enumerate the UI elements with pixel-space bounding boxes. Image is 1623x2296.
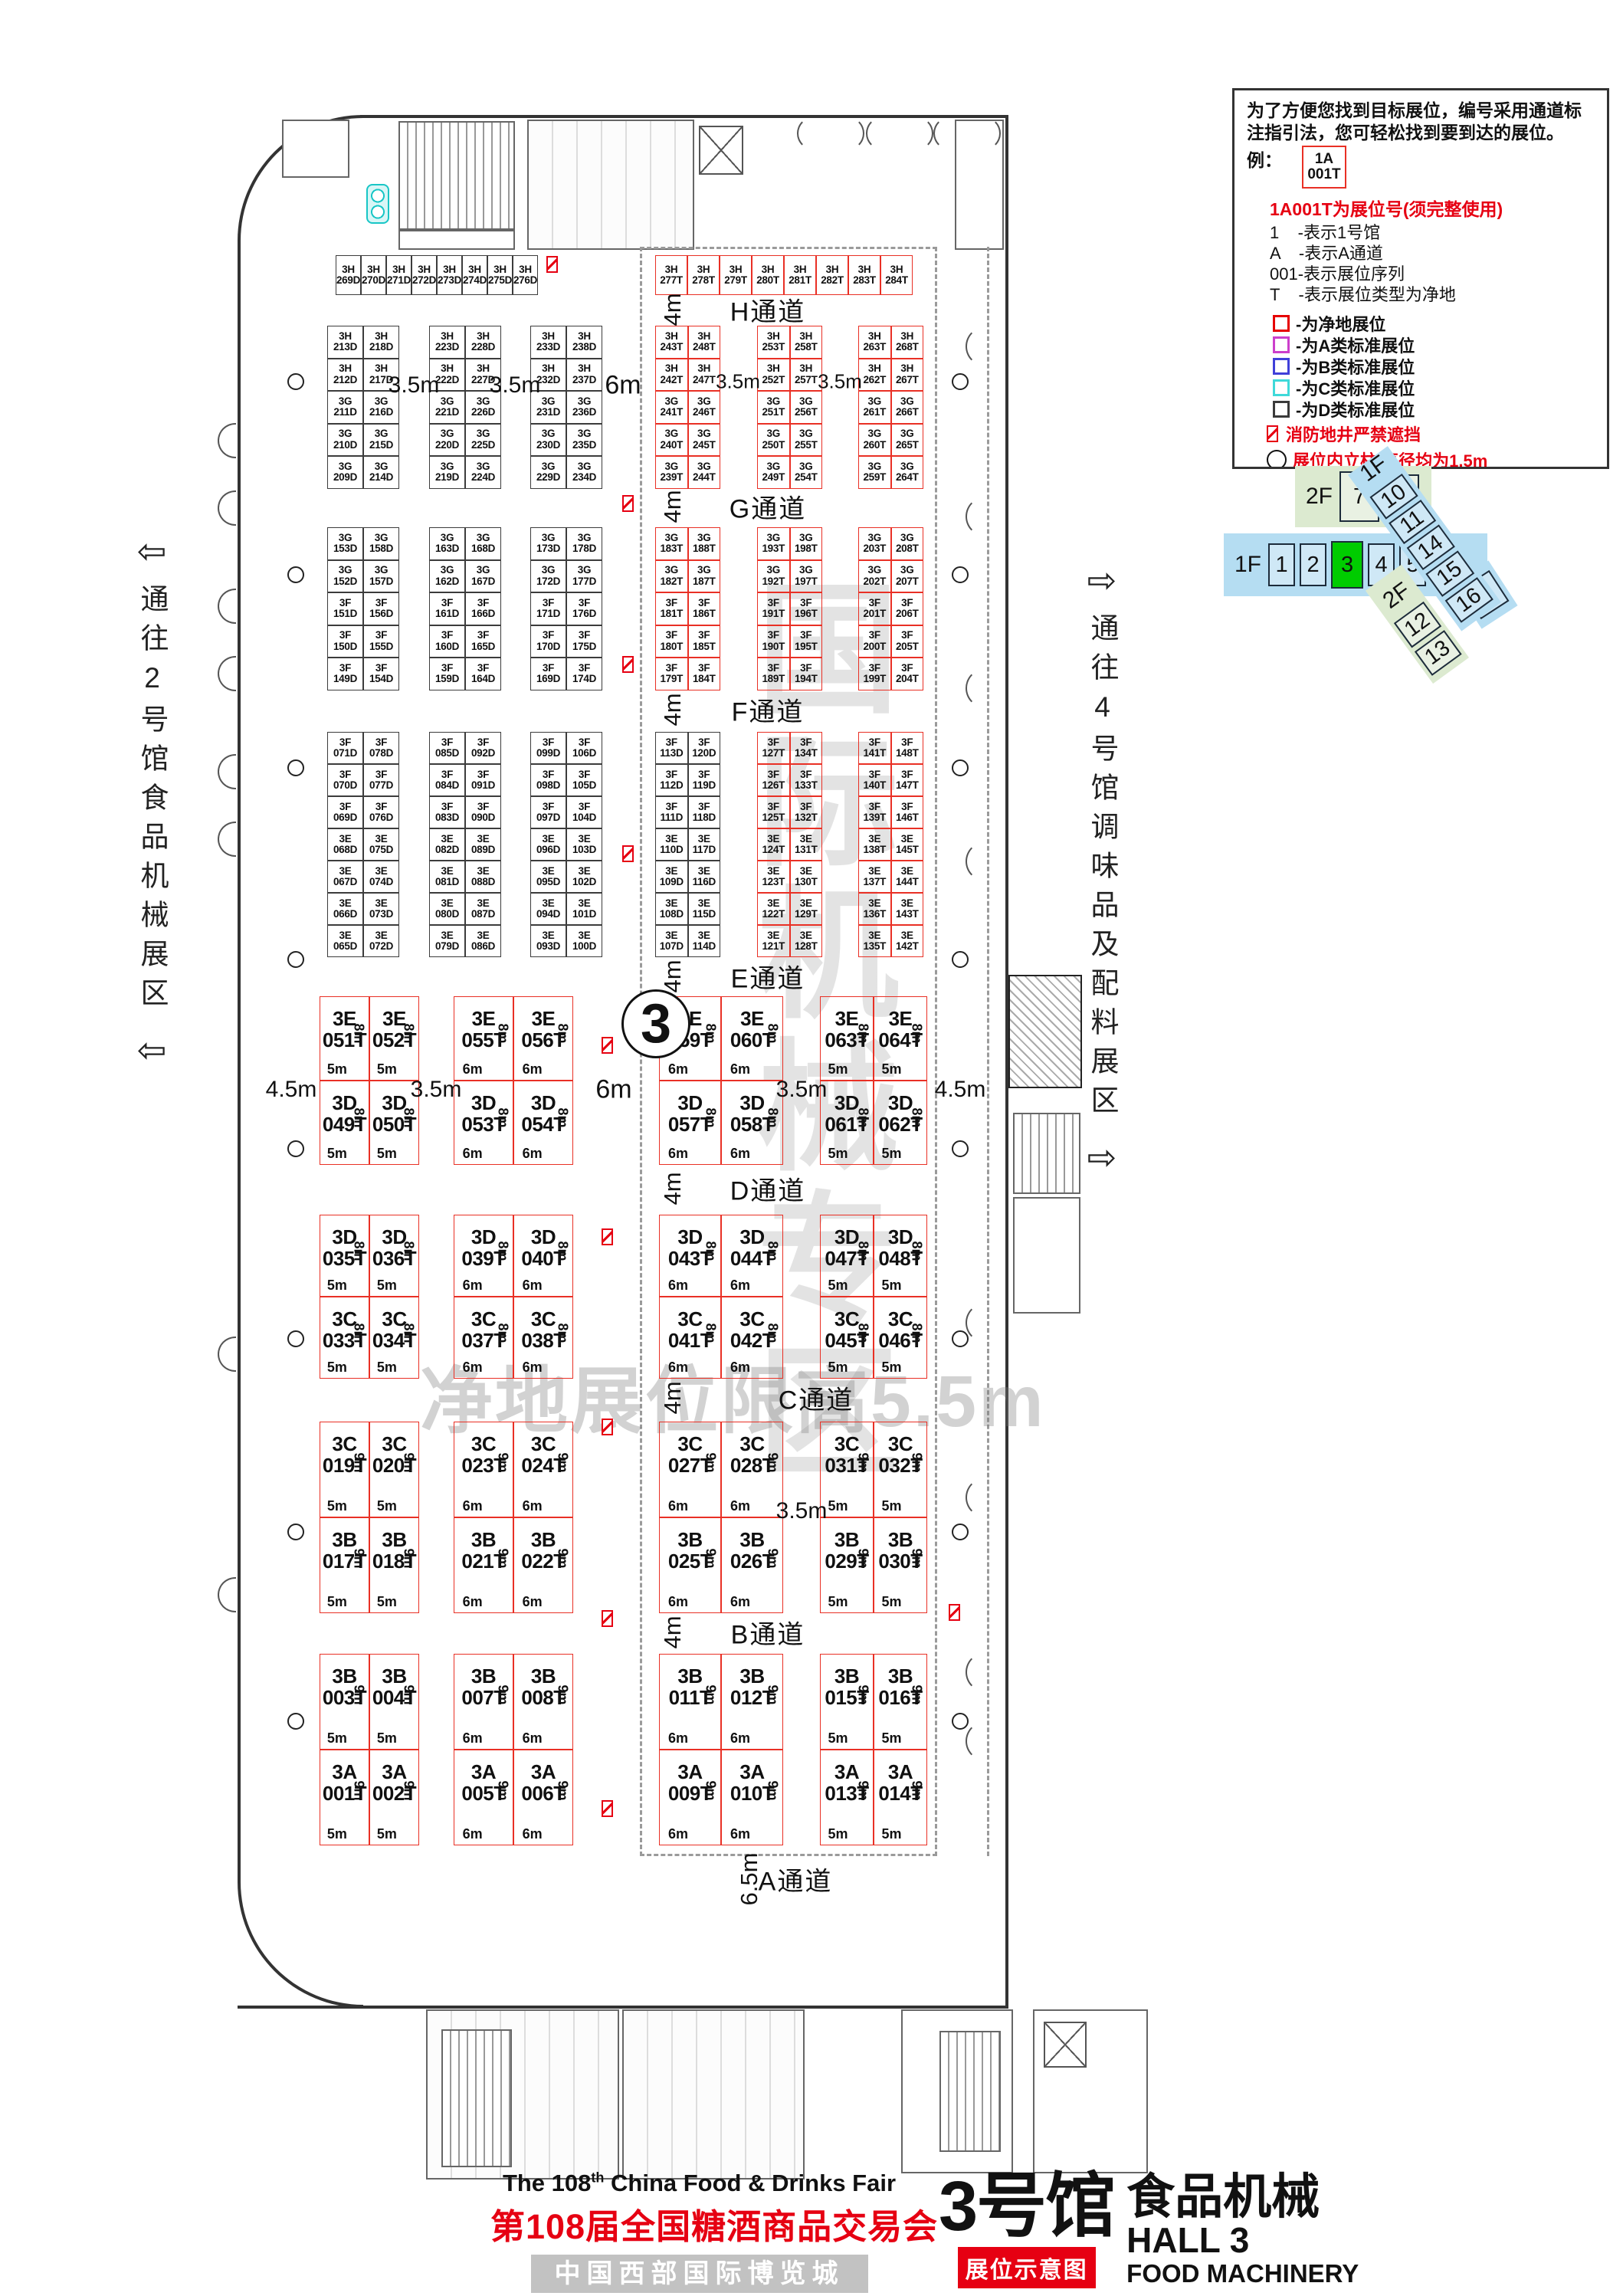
- aisle-name-label: H通道: [730, 291, 806, 329]
- dimension-label: 3.5m: [776, 1498, 828, 1524]
- booth-cell: 3E066D: [327, 893, 363, 925]
- legend-example-label: 例：: [1247, 146, 1282, 172]
- door-swing-arc: [933, 116, 967, 150]
- booth-cell: 3G197T: [790, 560, 823, 593]
- hall-title-en: HALL 3: [1126, 2222, 1359, 2258]
- door-swing-arc: [967, 116, 1001, 150]
- booth-cell: 3E107D: [655, 925, 688, 957]
- booth-cell: 3G214D: [363, 456, 399, 489]
- booth-cell: 3F190T: [757, 625, 790, 658]
- booth-cell: 3D040T6m8m: [513, 1215, 573, 1297]
- service-room: [282, 120, 349, 178]
- door-bump: [218, 1337, 236, 1372]
- booth-cell: 3F069D: [327, 796, 363, 828]
- minimap-floor-label: 2F: [1379, 577, 1415, 614]
- booth-cell: 3F084D: [429, 764, 465, 796]
- column-circle: [952, 759, 969, 776]
- booth-cell: 3G246T: [688, 391, 721, 424]
- column-circle: [952, 951, 969, 968]
- legend-type-row: -为A类标准展位: [1267, 334, 1595, 356]
- dimension-label: 4.5m: [935, 1077, 986, 1103]
- booth-type-label: -为D类标准展位: [1296, 397, 1415, 421]
- booth-cell: 3D058T6m8m: [721, 1081, 783, 1165]
- minimap-hall-2: 2: [1300, 543, 1326, 586]
- booth-cell: 3C046T5m8m: [874, 1297, 927, 1379]
- booth-cell: 3D043T6m8m: [659, 1215, 721, 1297]
- aisle-width-label: 4m: [659, 959, 687, 992]
- column-circle: [287, 373, 304, 390]
- booth-cell: 3E079D: [429, 925, 465, 957]
- hall-number-marker: 3: [621, 989, 690, 1058]
- door-bump: [218, 423, 236, 458]
- booth-type-swatch: [1273, 401, 1290, 418]
- booth-cell: 3E068D: [327, 828, 363, 861]
- booth-cell: 3H262T: [858, 359, 891, 392]
- booth-cell: 3D048T5m8m: [874, 1215, 927, 1297]
- booth-cell: 3H269D: [336, 255, 361, 295]
- booth-cell: 3E117D: [688, 828, 721, 861]
- booth-cell: 3H281T: [784, 255, 816, 295]
- booth-cell: 3D057T6m8m: [659, 1081, 721, 1165]
- fair-title-en: The 108th China Food & Drinks Fair: [490, 2170, 908, 2197]
- booth-cell: 3C019T5m9m: [320, 1422, 369, 1517]
- right-arrow-icon: ⇨: [1087, 1140, 1117, 1175]
- aisle-width-label: 4m: [659, 1615, 687, 1648]
- booth-cell: 3G183T: [655, 527, 688, 560]
- legend-code-title: 1A001T为展位号(须完整使用): [1270, 195, 1595, 221]
- left-arrow-icon: ⇦: [137, 533, 167, 569]
- legend-code-line: T -表示展位类型为净地: [1270, 284, 1595, 305]
- dimension-label: 3.5m: [411, 1077, 462, 1103]
- booth-cell: 3E067D: [327, 861, 363, 893]
- booth-cell: 3H278T: [687, 255, 720, 295]
- dimension-label: 3.5m: [818, 370, 862, 394]
- booth-cell: 3B026T6m9m: [721, 1517, 783, 1613]
- booth-cell: 3H237D: [566, 359, 602, 392]
- aisle-name-label: D通道: [730, 1170, 806, 1208]
- booth-cell: 3H238D: [566, 326, 602, 359]
- booth-cell: 3G158D: [363, 527, 399, 560]
- booth-cell: 3G192T: [757, 560, 790, 593]
- minimap-hall-3: 3: [1331, 541, 1363, 589]
- wall: [238, 247, 241, 1873]
- hall-category-cn: 食品机械: [1126, 2173, 1359, 2222]
- booth-cell: 3B008T6m9m: [513, 1654, 573, 1750]
- column-circle: [952, 566, 969, 583]
- booth-cell: 3F077D: [363, 764, 399, 796]
- booth-cell: 3F092D: [465, 732, 501, 764]
- booth-cell: 3F159D: [429, 658, 465, 690]
- aisle-name-label: G通道: [730, 488, 806, 526]
- booth-cell: 3C032T5m9m: [874, 1422, 927, 1517]
- fire-hydrant-icon: [602, 1800, 613, 1817]
- booth-cell: 3E100D: [566, 925, 602, 957]
- booth-cell: 3G203T: [858, 527, 891, 560]
- booth-type-swatch: [1273, 358, 1290, 375]
- booth-cell: 3G163D: [429, 527, 465, 560]
- booth-cell: 3B016T5m9m: [874, 1654, 927, 1750]
- booth-cell: 3G264T: [891, 456, 924, 489]
- booth-cell: 3F118D: [688, 796, 721, 828]
- booth-cell: 3F196T: [790, 592, 823, 625]
- booth-cell: 3A002T5m9m: [369, 1750, 419, 1845]
- booth-cell: 3G251T: [757, 391, 790, 424]
- door-swing-arc: [966, 841, 1005, 881]
- booth-cell: 3G230D: [530, 424, 566, 457]
- fixture-icon: [366, 184, 389, 224]
- booth-cell: 3F174D: [566, 658, 602, 690]
- booth-cell: 3C027T6m9m: [659, 1422, 721, 1517]
- booth-cell: 3E103D: [566, 828, 602, 861]
- booth-cell: 3F185T: [688, 625, 721, 658]
- door-swing-arc: [966, 1478, 1005, 1517]
- booth-cell: 3F176D: [566, 592, 602, 625]
- booth-cell: 3B015T5m9m: [820, 1654, 874, 1750]
- legend-type-row: -为B类标准展位: [1267, 356, 1595, 377]
- dimension-label: 6m: [605, 371, 641, 401]
- booth-cell: 3A014T5m9m: [874, 1750, 927, 1845]
- booth-cell: 3C033T5m8m: [320, 1297, 369, 1379]
- booth-cell: 3F149D: [327, 658, 363, 690]
- booth-cell: 3F180T: [655, 625, 688, 658]
- legend-type-row: -为净地展位: [1267, 313, 1595, 334]
- booth-cell: 3D061T5m8m: [820, 1081, 874, 1165]
- booth-cell: 3F164D: [465, 658, 501, 690]
- legend-fire-note: 消防地井严禁遮挡: [1267, 421, 1595, 446]
- fire-hydrant-icon: [602, 1228, 613, 1245]
- booth-cell: 3E089D: [465, 828, 501, 861]
- booth-cell: 3G152D: [327, 560, 363, 593]
- aisle-name-label: A通道: [759, 1861, 833, 1898]
- booth-cell: 3G182T: [655, 560, 688, 593]
- booth-cell: 3F181T: [655, 592, 688, 625]
- door-swing-arc: [797, 116, 831, 150]
- venue-minimap: 2F781F123456916151411101F13122F: [1215, 460, 1598, 782]
- booth-cell: 3G249T: [757, 456, 790, 489]
- booth-cell: 3E138T: [858, 828, 891, 861]
- booth-cell: 3G260T: [858, 424, 891, 457]
- aisle-name-label: C通道: [779, 1379, 854, 1417]
- booth-cell: 3E082D: [429, 828, 465, 861]
- legend-intro: 为了方便您找到目标展位，编号采用通道标注指引法，您可轻松找到要到达的展位。: [1247, 100, 1595, 144]
- dimension-label: 6m: [595, 1075, 631, 1105]
- booth-cell: 3F161D: [429, 592, 465, 625]
- booth-cell: 3F141T: [858, 732, 891, 764]
- booth-cell: 3F170D: [530, 625, 566, 658]
- booth-cell: 3E086D: [465, 925, 501, 957]
- booth-cell: 3H263T: [858, 326, 891, 359]
- door-swing-arc: [831, 116, 864, 150]
- booth-cell: 3G177D: [566, 560, 602, 593]
- booth-cell: 3F205T: [891, 625, 924, 658]
- hall-title-cn: 3号馆: [939, 2173, 1114, 2240]
- booth-cell: 3G215D: [363, 424, 399, 457]
- booth-cell: 3G219D: [429, 456, 465, 489]
- booth-cell: 3G256T: [790, 391, 823, 424]
- booth-cell: 3F105D: [566, 764, 602, 796]
- booth-cell: 3F156D: [363, 592, 399, 625]
- column-circle: [952, 1330, 969, 1347]
- column-circle: [287, 566, 304, 583]
- floor-plan-canvas: 国际机械专区 净地展位限高5.5m 3H269D3H270D3H271D3H27…: [0, 0, 1623, 2296]
- booth-cell: 3F085D: [429, 732, 465, 764]
- booth-cell: 3F148T: [891, 732, 924, 764]
- booth-cell: 3H277T: [655, 255, 687, 295]
- restroom-block: [622, 2009, 805, 2180]
- legend-booth-types: -为净地展位-为A类标准展位-为B类标准展位-为C类标准展位-为D类标准展位: [1267, 313, 1595, 420]
- column-circle: [287, 1330, 304, 1347]
- booth-cell: 3B012T6m9m: [721, 1654, 783, 1750]
- booth-cell: 3F160D: [429, 625, 465, 658]
- booth-cell: 3F194T: [790, 658, 823, 690]
- booth-cell: 3E072D: [363, 925, 399, 957]
- booth-cell: 3F191T: [757, 592, 790, 625]
- booth-cell: 3D062T5m8m: [874, 1081, 927, 1165]
- booth-cell: 3G250T: [757, 424, 790, 457]
- booth-cell: 3G261T: [858, 391, 891, 424]
- right-direction-text: 通往4号馆调味品及配料展区: [1081, 613, 1123, 1124]
- booth-cell: 3A006T6m9m: [513, 1750, 573, 1845]
- minimap-hall-1: 1: [1268, 543, 1295, 586]
- booth-cell: 3G236D: [566, 391, 602, 424]
- booth-cell: 3E116D: [688, 861, 721, 893]
- door-bump: [218, 822, 236, 857]
- booth-cell: 3G187T: [688, 560, 721, 593]
- booth-cell: 3F169D: [530, 658, 566, 690]
- booth-cell: 3E145T: [891, 828, 924, 861]
- booth-cell: 3C034T5m8m: [369, 1297, 419, 1379]
- booth-cell: 3G178D: [566, 527, 602, 560]
- booth-cell: 3G198T: [790, 527, 823, 560]
- booth-cell: 3E144T: [891, 861, 924, 893]
- booth-cell: 3F206T: [891, 592, 924, 625]
- booth-cell: 3F091D: [465, 764, 501, 796]
- dimension-label: 4.5m: [266, 1077, 317, 1103]
- example-booth-line2: 001T: [1307, 167, 1340, 182]
- aisle-width-label: 4m: [659, 293, 687, 326]
- booth-cell: 3G224D: [465, 456, 501, 489]
- booth-cell: 3E101D: [566, 893, 602, 925]
- booth-cell: 3C041T6m8m: [659, 1297, 721, 1379]
- booth-cell: 3D054T6m8m: [513, 1081, 573, 1165]
- booth-cell: 3B011T6m9m: [659, 1654, 721, 1750]
- booth-cell: 3F127T: [757, 732, 790, 764]
- dimension-label: 3.5m: [716, 370, 760, 394]
- fire-hydrant-icon: [622, 656, 634, 673]
- booth-cell: 3G265T: [891, 424, 924, 457]
- booth-cell: 3D035T5m8m: [320, 1215, 369, 1297]
- booth-cell: 3C020T5m9m: [369, 1422, 419, 1517]
- booth-cell: 3E087D: [465, 893, 501, 925]
- booth-cell: 3F166D: [465, 592, 501, 625]
- booth-cell: 3F120D: [688, 732, 721, 764]
- booth-cell: 3H223D: [429, 326, 465, 359]
- booth-cell: 3E060T6m8m: [721, 996, 783, 1081]
- dimension-label: 3.5m: [776, 1077, 828, 1103]
- booth-cell: 3G255T: [790, 424, 823, 457]
- booth-cell: 3E052T5m8m: [369, 996, 419, 1081]
- booth-cell: 3H212D: [327, 359, 363, 392]
- dimension-label: 3.5m: [490, 372, 541, 399]
- aisle-name-label: E通道: [731, 958, 805, 995]
- booth-cell: 3H253T: [757, 326, 790, 359]
- booth-cell: 3G173D: [530, 527, 566, 560]
- booth-cell: 3E108D: [655, 893, 688, 925]
- booth-cell: 3B029T5m9m: [820, 1517, 874, 1613]
- booth-cell: 3D039T6m8m: [454, 1215, 513, 1297]
- booth-cell: 3E063T5m8m: [820, 996, 874, 1081]
- booth-cell: 3F175D: [566, 625, 602, 658]
- booth-cell: 3G245T: [688, 424, 721, 457]
- booth-cell: 3E121T: [757, 925, 790, 957]
- booth-cell: 3H276D: [513, 255, 538, 295]
- left-arrow-icon: ⇦: [137, 1032, 167, 1068]
- booth-cell: 3F147T: [891, 764, 924, 796]
- service-room: [398, 230, 515, 250]
- booth-cell: 3E136T: [858, 893, 891, 925]
- fire-hydrant-icon: [622, 495, 634, 512]
- booth-cell: 3F113D: [655, 732, 688, 764]
- booth-cell: 3H268T: [891, 326, 924, 359]
- booth-cell: 3H218D: [363, 326, 399, 359]
- left-direction-text: 通往2号馆食品机械展区: [131, 584, 172, 1017]
- booth-cell: 3F111D: [655, 796, 688, 828]
- fair-title-cn: 第108届全国糖酒商品交易会: [490, 2199, 908, 2248]
- column-circle: [287, 951, 304, 968]
- door-bump: [218, 656, 236, 691]
- staircase: [441, 2029, 512, 2167]
- left-direction-label: ⇦ 通往2号馆食品机械展区 ⇦: [124, 529, 179, 1072]
- booth-cell: 3A001T5m9m: [320, 1750, 369, 1845]
- booth-cell: 3C038T6m8m: [513, 1297, 573, 1379]
- map-type-badge: 展位示意图: [958, 2247, 1096, 2288]
- column-circle: [952, 1140, 969, 1157]
- booth-cell: 3B004T5m9m: [369, 1654, 419, 1750]
- elevator: [1044, 2022, 1087, 2068]
- booth-cell: 3G167D: [465, 560, 501, 593]
- booth-cell: 3A013T5m9m: [820, 1750, 874, 1845]
- booth-cell: 3G235D: [566, 424, 602, 457]
- booth-cell: 3F199T: [858, 658, 891, 690]
- booth-cell: 3F201T: [858, 592, 891, 625]
- service-room: [1013, 1197, 1080, 1314]
- hall-category-en: FOOD MACHINERY: [1126, 2259, 1359, 2288]
- booth-cell: 3F098D: [530, 764, 566, 796]
- booth-cell: 3F119D: [688, 764, 721, 796]
- booth-cell: 3G193T: [757, 527, 790, 560]
- column-circle: [287, 1713, 304, 1730]
- booth-cell: 3F125T: [757, 796, 790, 828]
- booth-cell: 3G229D: [530, 456, 566, 489]
- booth-cell: 3D036T5m8m: [369, 1215, 419, 1297]
- minimap-floor-label: 1F: [1234, 552, 1261, 578]
- fire-hydrant-icon: [949, 1604, 960, 1621]
- booth-cell: 3A009T6m9m: [659, 1750, 721, 1845]
- fire-hydrant-icon: [1267, 425, 1278, 442]
- booth-cell: 3F070D: [327, 764, 363, 796]
- booth-cell: 3G162D: [429, 560, 465, 593]
- legend-example-booth: 1A 001T: [1302, 146, 1346, 189]
- booth-cell: 3G259T: [858, 456, 891, 489]
- booth-cell: 3G202T: [858, 560, 891, 593]
- booth-cell: 3B025T6m9m: [659, 1517, 721, 1613]
- column-circle: [287, 1524, 304, 1540]
- door-bump: [218, 589, 236, 624]
- booth-cell: 3B007T6m9m: [454, 1654, 513, 1750]
- booth-cell: 3H274D: [462, 255, 487, 295]
- booth-cell: 3E074D: [363, 861, 399, 893]
- booth-cell: 3H213D: [327, 326, 363, 359]
- booth-cell: 3F165D: [465, 625, 501, 658]
- booth-cell: 3E130T: [790, 861, 823, 893]
- booth-cell: 3D044T6m8m: [721, 1215, 783, 1297]
- column-circle: [952, 1713, 969, 1730]
- booth-cell: 3E088D: [465, 861, 501, 893]
- booth-type-swatch: [1273, 315, 1290, 332]
- booth-cell: 3F189T: [757, 658, 790, 690]
- booth-cell: 3G244T: [688, 456, 721, 489]
- booth-cell: 3A010T6m9m: [721, 1750, 783, 1845]
- booth-cell: 3E110D: [655, 828, 688, 861]
- booth-cell: 3G209D: [327, 456, 363, 489]
- column-circle: [287, 1140, 304, 1157]
- booth-cell: 3G153D: [327, 527, 363, 560]
- legend-code-line: 001-表示展位序列: [1270, 264, 1595, 284]
- booth-cell: 3H275D: [487, 255, 513, 295]
- booth-cell: 3F146T: [891, 796, 924, 828]
- booth-cell: 3F090D: [465, 796, 501, 828]
- booth-cell: 3F155D: [363, 625, 399, 658]
- column-circle: [952, 373, 969, 390]
- booth-cell: 3E080D: [429, 893, 465, 925]
- aisle-name-label: B通道: [731, 1614, 805, 1651]
- door-swing-arc: [866, 116, 900, 150]
- booth-cell: 3H272D: [411, 255, 437, 295]
- booth-cell: 3F097D: [530, 796, 566, 828]
- booth-cell: 3H273D: [437, 255, 462, 295]
- door-bump: [218, 754, 236, 789]
- booth-cell: 3F171D: [530, 592, 566, 625]
- booth-cell: 3H252T: [757, 359, 790, 392]
- booth-cell: 3G207T: [891, 560, 924, 593]
- booth-cell: 3F132T: [790, 796, 823, 828]
- booth-cell: 3G172D: [530, 560, 566, 593]
- booth-cell: 3E095D: [530, 861, 566, 893]
- door-swing-arc: [966, 668, 1005, 708]
- booth-cell: 3H267T: [891, 359, 924, 392]
- booth-cell: 3E096D: [530, 828, 566, 861]
- booth-cell: 3H270D: [361, 255, 386, 295]
- booth-cell: 3E081D: [429, 861, 465, 893]
- booth-cell: 3E055T6m8m: [454, 996, 513, 1081]
- booth-cell: 3G254T: [790, 456, 823, 489]
- booth-cell: 3E064T5m8m: [874, 996, 927, 1081]
- booth-cell: 3E114D: [688, 925, 721, 957]
- legend-code-lines: 1 -表示1号馆A -表示A通道001-表示展位序列T -表示展位类型为净地: [1247, 222, 1595, 305]
- booth-cell: 3E128T: [790, 925, 823, 957]
- booth-type-swatch: [1273, 336, 1290, 353]
- booth-cell: 3F112D: [655, 764, 688, 796]
- booth-cell: 3E056T6m8m: [513, 996, 573, 1081]
- booth-cell: 3G168D: [465, 527, 501, 560]
- fire-hydrant-icon: [602, 1419, 613, 1435]
- legend-code-line: A -表示A通道: [1270, 243, 1595, 264]
- booth-cell: 3F204T: [891, 658, 924, 690]
- booth-cell: 3F078D: [363, 732, 399, 764]
- booth-cell: 3G266T: [891, 391, 924, 424]
- booth-cell: 3E065D: [327, 925, 363, 957]
- booth-cell: 3G188T: [688, 527, 721, 560]
